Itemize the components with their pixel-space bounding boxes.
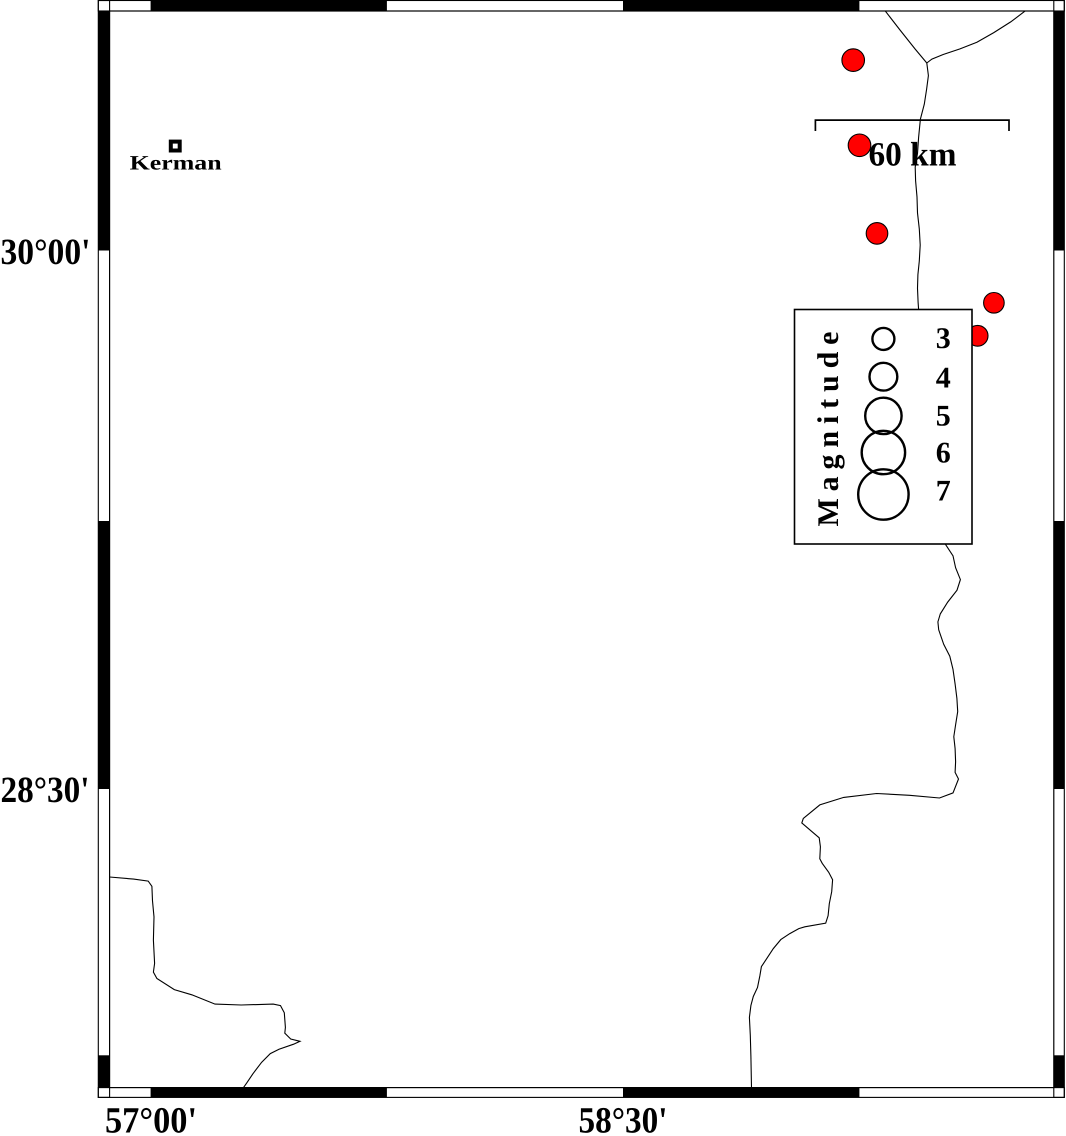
svg-text:6: 6 [936,436,951,469]
svg-text:28°30': 28°30' [1,770,90,811]
svg-text:3: 3 [936,322,951,355]
svg-text:5: 5 [936,400,951,433]
svg-text:58°30': 58°30' [579,1101,668,1136]
svg-text:Kerman: Kerman [130,152,223,174]
svg-text:57°00': 57°00' [105,1101,197,1136]
svg-text:7: 7 [936,474,951,507]
svg-text:60 km: 60 km [869,136,957,173]
svg-text:30°00': 30°00' [1,232,91,273]
svg-text:4: 4 [936,362,951,395]
